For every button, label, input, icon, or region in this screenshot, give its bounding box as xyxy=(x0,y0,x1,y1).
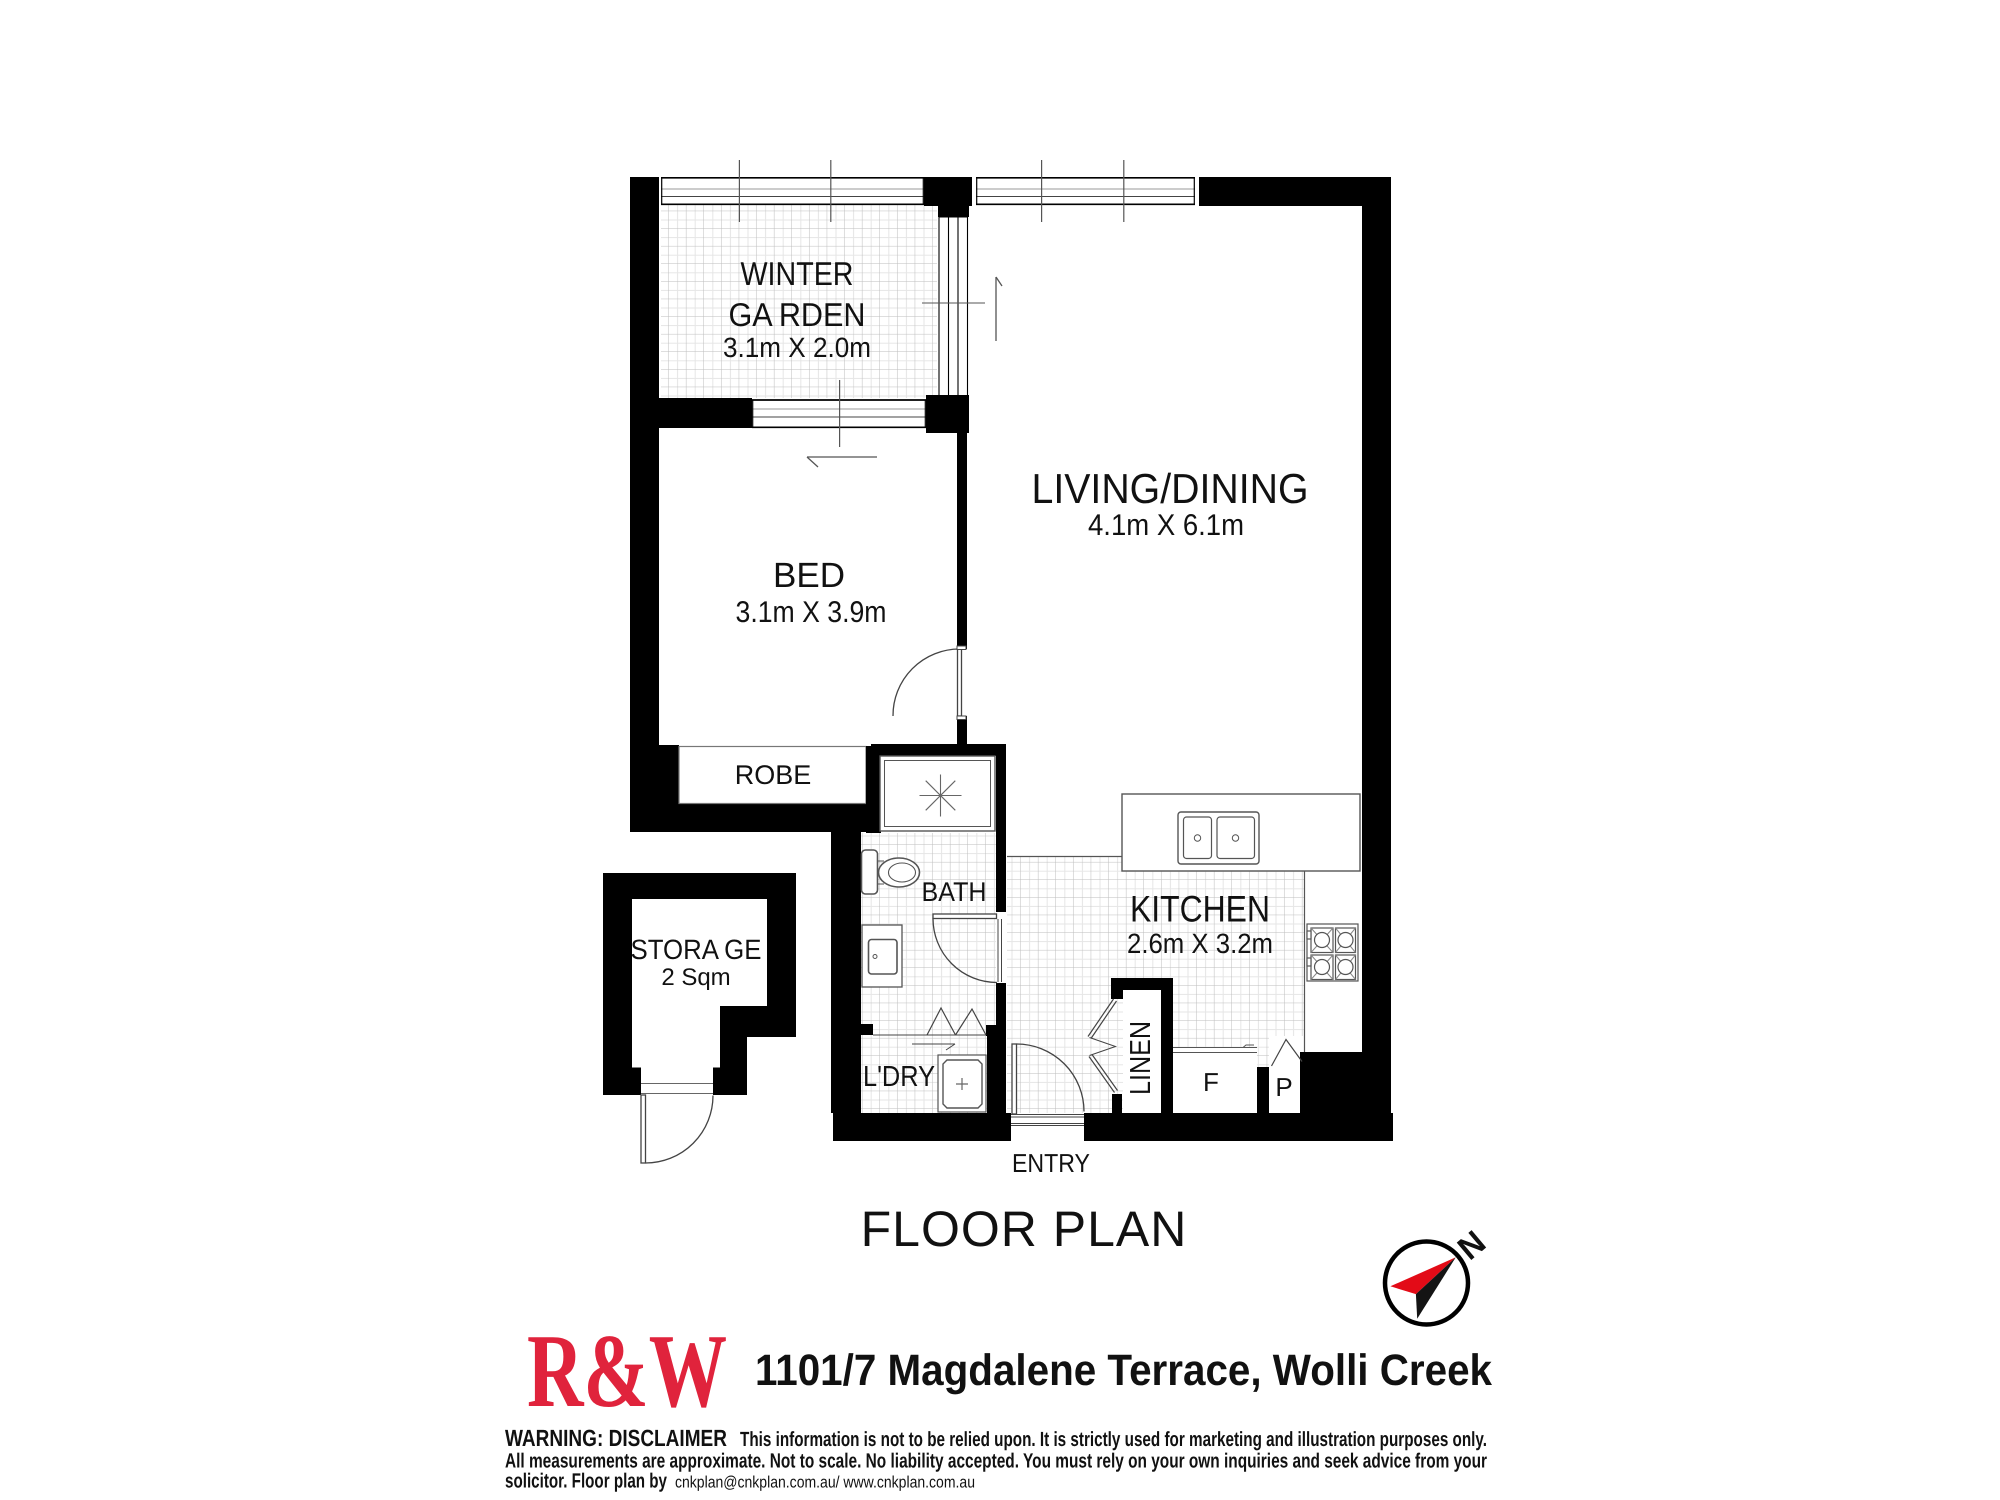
svg-text:KITCHEN: KITCHEN xyxy=(1130,889,1270,930)
svg-text:BED: BED xyxy=(773,556,845,595)
svg-text:ROBE: ROBE xyxy=(735,760,812,790)
svg-text:LIVING/DINING: LIVING/DINING xyxy=(1032,465,1309,512)
svg-text:P: P xyxy=(1275,1072,1292,1102)
svg-text:3.1m X 2.0m: 3.1m X 2.0m xyxy=(723,332,871,363)
svg-text:FLOOR PLAN: FLOOR PLAN xyxy=(861,1201,1188,1257)
svg-text:2.6m X 3.2m: 2.6m X 3.2m xyxy=(1127,928,1273,959)
svg-text:WARNING: DISCLAIMERThis inform: WARNING: DISCLAIMERThis information is n… xyxy=(505,1425,1487,1451)
svg-text:LINEN: LINEN xyxy=(1125,1021,1157,1095)
svg-text:STORA GE: STORA GE xyxy=(631,934,762,965)
svg-text:F: F xyxy=(1203,1067,1219,1097)
svg-text:ENTRY: ENTRY xyxy=(1012,1148,1090,1178)
svg-text:2 Sqm: 2 Sqm xyxy=(661,964,730,991)
svg-text:3.1m X 3.9m: 3.1m X 3.9m xyxy=(736,596,887,629)
svg-text:1101/7 Magdalene Terrace, Woll: 1101/7 Magdalene Terrace, Wolli Creek xyxy=(755,1346,1492,1395)
svg-text:R&W: R&W xyxy=(527,1312,727,1429)
svg-text:BATH: BATH xyxy=(922,877,987,907)
svg-text:WINTER: WINTER xyxy=(741,255,854,292)
svg-text:GA RDEN: GA RDEN xyxy=(729,296,866,333)
svg-text:solicitor. Floor plan bycnkpla: solicitor. Floor plan bycnkplan@cnkplan.… xyxy=(505,1470,975,1493)
svg-text:N: N xyxy=(1450,1223,1492,1267)
svg-text:L'DRY: L'DRY xyxy=(863,1061,935,1093)
svg-text:4.1m X 6.1m: 4.1m X 6.1m xyxy=(1088,509,1244,542)
